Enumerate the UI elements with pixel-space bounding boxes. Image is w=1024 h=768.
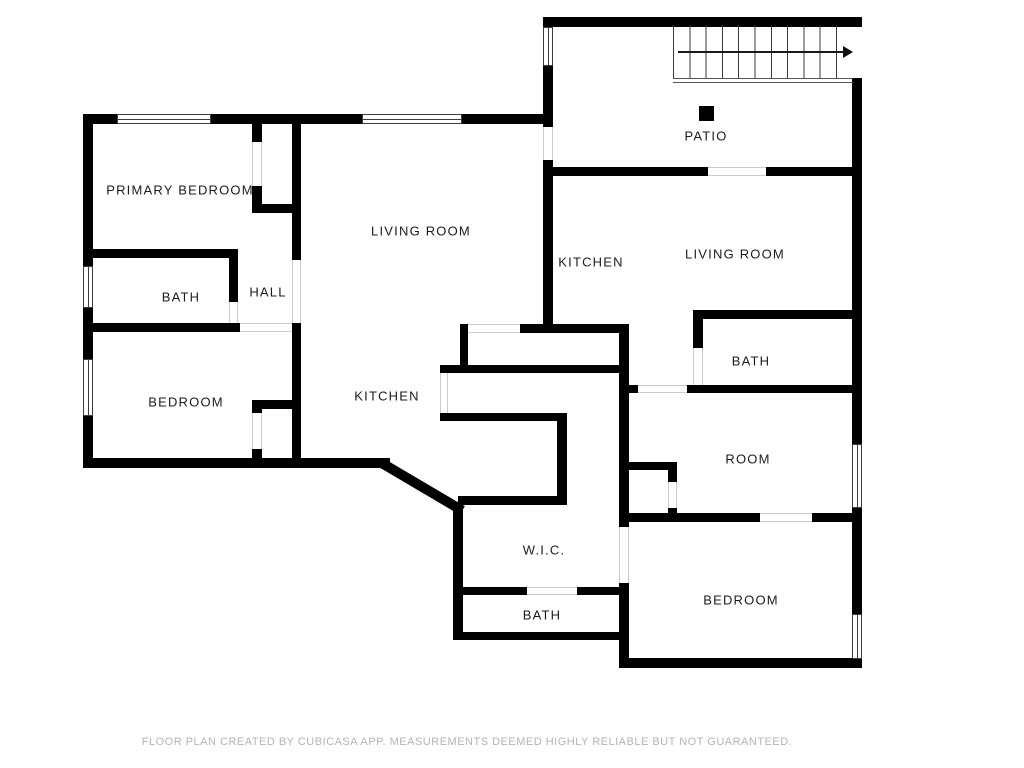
door-patio-living-right [708, 167, 766, 176]
wall-bath-right-top [693, 310, 862, 319]
floor-plan-canvas: PRIMARY BEDROOM LIVING ROOM BATH HALL BE… [0, 0, 1024, 768]
stairs-bottom-edge [673, 78, 853, 83]
room-label-bedroom-right: BEDROOM [703, 593, 779, 608]
wall-left-unit-bottom [83, 458, 390, 468]
wall-diagonal [378, 458, 465, 515]
stairs-arrow-icon [843, 46, 853, 58]
room-label-bath-left: BATH [162, 290, 201, 305]
door-hall-bedroom-left [240, 323, 292, 332]
door-bath-right [693, 348, 703, 385]
door-hall-living-room [292, 260, 301, 323]
wall-bath-bedroom-divider [83, 323, 240, 332]
wall-kitchen-nook-top [440, 413, 567, 421]
door-corridor [468, 324, 520, 333]
wall-right-unit-right-corner [852, 17, 862, 25]
wall-bath-right-bottom [687, 385, 862, 393]
door-wic-bath [527, 587, 577, 595]
stairs-direction-line [678, 51, 844, 53]
room-label-room: ROOM [725, 452, 770, 467]
door-bedroom-right [760, 513, 812, 522]
wall-bedroom-top-left [629, 513, 760, 522]
window-living-room-left-top [362, 114, 462, 124]
wall-center-divider-upper [292, 114, 301, 260]
window-primary-bedroom-top [117, 114, 211, 124]
window-patio-left [543, 27, 553, 66]
door-wic-bedroom [619, 527, 629, 583]
footer-disclaimer: FLOOR PLAN CREATED BY CUBICASA APP. MEAS… [142, 736, 792, 748]
wall-patio-divider-right [766, 167, 862, 176]
room-label-living-room-left: LIVING ROOM [371, 224, 471, 239]
door-living-room-patio [543, 127, 553, 160]
wall-wic-bath-divider-right [577, 587, 625, 595]
wall-bedroom-top-right [812, 513, 862, 522]
wall-corridor-top [520, 324, 629, 333]
room-label-bedroom-left: BEDROOM [148, 395, 224, 410]
wall-patio-divider-left [543, 167, 708, 176]
door-room-closet [668, 482, 677, 508]
room-label-patio: PATIO [684, 129, 727, 144]
room-label-living-room-right: LIVING ROOM [685, 247, 785, 262]
wall-right-unit-right-mid [852, 507, 862, 615]
window-bedroom-left [83, 359, 93, 416]
room-label-kitchen-right: KITCHEN [558, 255, 623, 270]
wall-room-closet-right-upper [668, 470, 677, 482]
window-bath-left [83, 266, 93, 308]
patio-post [699, 106, 714, 121]
wall-kitchen-nook-right [557, 413, 567, 505]
wall-primary-bedroom-bath-divider [83, 249, 238, 258]
room-label-bath-right: BATH [732, 354, 771, 369]
wall-bath-right-left [693, 310, 703, 348]
window-room-right [852, 444, 862, 508]
wall-primary-closet-left-upper [252, 124, 262, 142]
wall-room-closet-top [629, 462, 677, 470]
wall-bedroom-bottom [619, 658, 862, 668]
room-label-primary-bedroom: PRIMARY BEDROOM [106, 183, 254, 198]
wall-central-vertical-upper [619, 331, 629, 527]
room-label-wic: W.I.C. [523, 543, 566, 558]
door-bedroom-left-closet [252, 413, 262, 449]
wall-center-divider-lower [292, 323, 301, 468]
door-room-kitchen-right [638, 385, 687, 393]
door-bath-left-hall [229, 302, 238, 323]
room-label-bath-bottom: BATH [523, 608, 562, 623]
wall-bath-right-tick [629, 385, 638, 393]
door-primary-closet [252, 142, 262, 186]
door-kitchen-nook [440, 373, 448, 413]
room-label-kitchen-left: KITCHEN [354, 389, 419, 404]
room-label-hall: HALL [249, 285, 286, 300]
wall-bedroom-closet-left-lower [252, 449, 262, 462]
wall-right-unit-left-lower [543, 160, 553, 333]
wall-corridor-bottom [440, 365, 620, 373]
wall-wic-left [453, 503, 463, 640]
window-bedroom-right [852, 614, 862, 659]
wall-right-unit-left-mid [543, 65, 553, 127]
wall-wic-bath-divider-left [463, 587, 527, 595]
wall-bath-bottom-outer [453, 632, 625, 640]
wall-wic-top [458, 496, 565, 505]
wall-central-vertical-lower [619, 583, 629, 668]
wall-bedroom-closet-left-upper [252, 400, 262, 413]
wall-bath-right [229, 258, 238, 302]
